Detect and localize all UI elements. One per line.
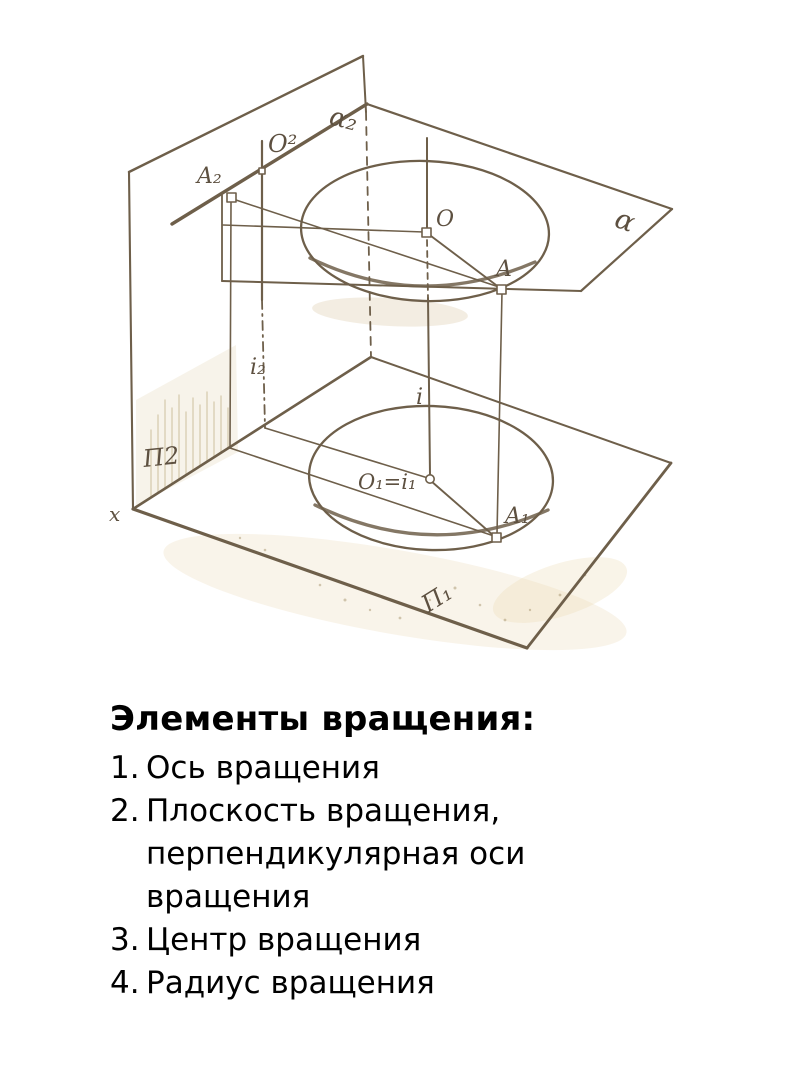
- label-p2: П2: [141, 441, 181, 473]
- label-o2: O²: [268, 130, 297, 158]
- rotation-elements-list: 1. Ось вращения 2. Плоскость вращения, п…: [110, 747, 586, 1005]
- slide-text-block: Элементы вращения: 1. Ось вращения 2. Пл…: [110, 699, 586, 1005]
- list-item: 2. Плоскость вращения, перпендикулярная …: [110, 790, 586, 919]
- list-item-text: Центр вращения: [146, 919, 574, 962]
- plane-alpha: [172, 104, 672, 291]
- list-item-text: Ось вращения: [146, 747, 574, 790]
- label-alpha2: α₂: [326, 102, 360, 138]
- marker-a: [497, 285, 506, 294]
- label-o: O: [436, 207, 454, 232]
- label-a2: A₂: [195, 164, 222, 189]
- marker-o1: [426, 475, 434, 483]
- label-x-axis: x: [109, 502, 120, 526]
- rotation-elements-heading: Элементы вращения:: [110, 699, 586, 740]
- label-o1-i1: O₁=i₁: [358, 470, 416, 494]
- slide-figure: α₂ O² A₂ α O A i₂ i O₁=i₁ A₁ П2 П₁ x: [0, 0, 800, 672]
- list-item-text: Радиус вращения: [146, 962, 574, 1005]
- list-item-number: 3.: [110, 919, 146, 962]
- marker-a2: [227, 193, 236, 202]
- label-a1: A₁: [503, 504, 530, 529]
- projection-sketch-svg: α₂ O² A₂ α O A i₂ i O₁=i₁ A₁ П2 П₁ x: [0, 0, 800, 672]
- marker-a1: [492, 533, 501, 542]
- label-a: A: [494, 257, 512, 282]
- page-root: α₂ O² A₂ α O A i₂ i O₁=i₁ A₁ П2 П₁ x Эле…: [0, 0, 800, 1066]
- list-item-number: 2.: [110, 790, 146, 919]
- label-i: i: [416, 385, 423, 410]
- list-item: 1. Ось вращения: [110, 747, 586, 790]
- marker-o2: [259, 168, 265, 174]
- list-item-text: Плоскость вращения, перпендикулярная оси…: [146, 790, 574, 919]
- marker-o: [422, 228, 431, 237]
- list-item-number: 1.: [110, 747, 146, 790]
- label-alpha: α: [611, 202, 640, 240]
- list-item: 3. Центр вращения: [110, 919, 586, 962]
- list-item-number: 4.: [110, 962, 146, 1005]
- label-i2: i₂: [250, 355, 266, 380]
- list-item: 4. Радиус вращения: [110, 962, 586, 1005]
- axis-i2-projection: [262, 141, 265, 428]
